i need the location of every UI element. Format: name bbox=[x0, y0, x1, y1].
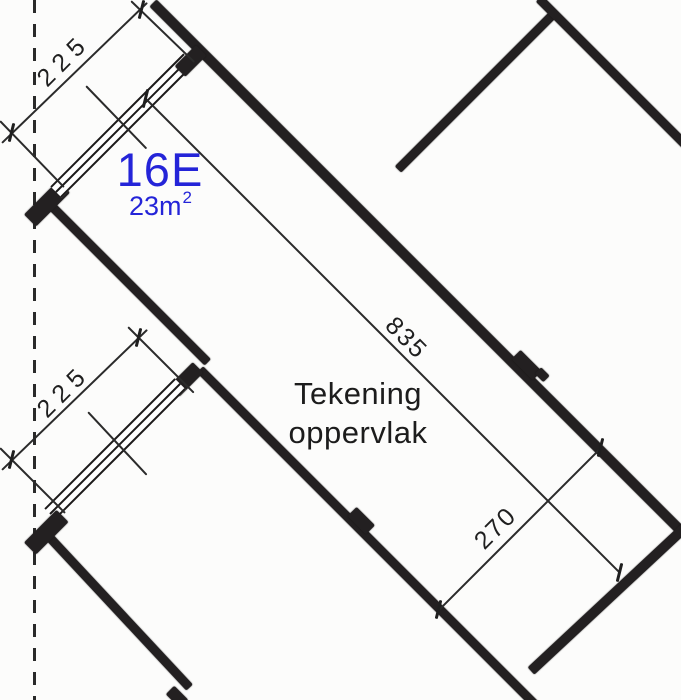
unit-number-label: 16E bbox=[108, 146, 212, 193]
boundary-dashed-line bbox=[33, 0, 36, 700]
wall-adjacent-unit-lower-left bbox=[42, 529, 193, 690]
room-label-line1: Tekening bbox=[264, 374, 452, 413]
unit-area-superscript: 2 bbox=[183, 188, 192, 207]
wall-16e-lower-left-upper bbox=[45, 199, 211, 365]
room-label-line2: oppervlak bbox=[264, 413, 452, 452]
wall-neighbour-end bbox=[395, 9, 558, 172]
wall-neighbour-side bbox=[536, 0, 681, 149]
unit-area-label: 23m2 bbox=[108, 191, 212, 220]
dim-text-270: 270 bbox=[459, 491, 533, 565]
wall-16e-upper-right bbox=[149, 0, 681, 533]
dim-tick bbox=[138, 0, 146, 19]
dim-tick bbox=[135, 328, 143, 347]
dim-835-line bbox=[145, 98, 620, 573]
floor-plan: 225 225 835 270 16E 23m2 Tekening opperv… bbox=[0, 0, 681, 700]
dim-text-225-top: 225 bbox=[27, 23, 101, 97]
room-description-label: Tekening oppervlak bbox=[264, 374, 452, 452]
dim-text-835: 835 bbox=[369, 301, 443, 375]
unit-area-value: 23m bbox=[129, 191, 182, 221]
wall-fixture-lower bbox=[347, 507, 375, 535]
wall-16e-end bbox=[528, 521, 681, 675]
dim-text-225-bottom: 225 bbox=[27, 354, 101, 428]
